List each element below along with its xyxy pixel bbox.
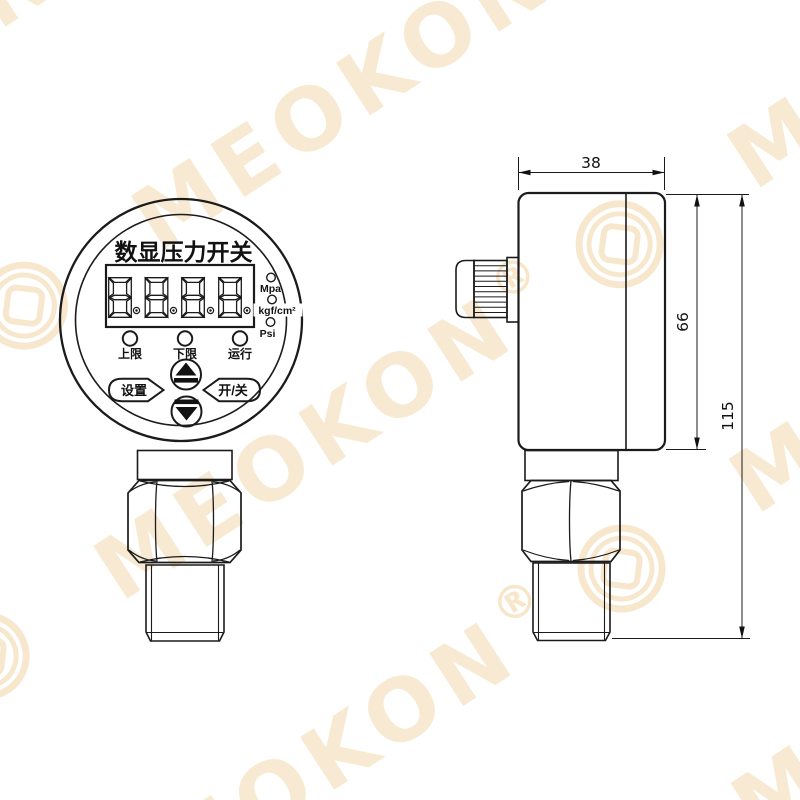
mpa-unit-label: Mpa bbox=[260, 283, 281, 295]
hex-nut bbox=[128, 481, 241, 563]
mpa-indicator-lamp bbox=[267, 273, 276, 282]
seven-segment-digit bbox=[145, 278, 168, 318]
kgfcm2-unit-label: kgf/cm² bbox=[258, 305, 296, 317]
arrow-left-icon bbox=[519, 170, 531, 176]
arrow-down-icon bbox=[739, 627, 745, 639]
collar-side bbox=[525, 451, 618, 481]
arrow-up-icon bbox=[739, 195, 745, 207]
front-view: 数显压力开关 Mpa kgf/cm² Psi bbox=[60, 199, 303, 641]
arrow-down-icon bbox=[694, 438, 700, 450]
kgfcm2-indicator-lamp bbox=[268, 295, 277, 304]
decimal-point bbox=[133, 307, 139, 313]
dimension-total-height-115: 115 bbox=[612, 195, 750, 639]
pressure-switch-drawing: 数显压力开关 Mpa kgf/cm² Psi bbox=[0, 0, 800, 800]
front-fittings bbox=[128, 451, 241, 642]
seven-segment-digit bbox=[219, 278, 242, 318]
upper-limit-label: 上限 bbox=[118, 346, 142, 361]
dimension-total-height-value: 115 bbox=[719, 401, 737, 431]
cable-gland-cap bbox=[456, 261, 474, 318]
thread-stud-side bbox=[533, 563, 610, 641]
decimal-point bbox=[244, 307, 250, 313]
side-view: 38 66 115 bbox=[456, 154, 750, 641]
decimal-point bbox=[170, 307, 176, 313]
down-bar-icon bbox=[175, 400, 199, 405]
gauge-outer-ring bbox=[60, 199, 302, 441]
up-arrow-icon bbox=[176, 363, 197, 376]
cable-gland-ribs bbox=[474, 261, 507, 318]
cable-gland bbox=[456, 258, 519, 323]
cable-gland-flange bbox=[507, 258, 519, 323]
housing-body bbox=[519, 193, 666, 450]
seven-segment-digits bbox=[109, 278, 250, 318]
psi-indicator-lamp bbox=[266, 318, 275, 327]
seven-segment-digit bbox=[182, 278, 205, 318]
running-lamp bbox=[233, 331, 247, 345]
side-fittings bbox=[522, 451, 620, 641]
dimension-body-height-value: 66 bbox=[674, 312, 692, 332]
psi-unit-label: Psi bbox=[260, 328, 276, 340]
status-lamps: 上限 下限 运行 bbox=[118, 331, 252, 361]
dimension-width-value: 38 bbox=[581, 154, 601, 172]
technical-drawing-canvas: MEOKON ® MEOKON ® MEOKON ® MEOKON ® MEOK… bbox=[0, 0, 800, 800]
panel-buttons: 设置 开/关 bbox=[109, 360, 260, 427]
running-label: 运行 bbox=[228, 346, 252, 361]
upper-limit-lamp bbox=[123, 331, 137, 345]
seven-segment-digit bbox=[109, 278, 132, 318]
collar bbox=[138, 451, 233, 480]
arrow-up-icon bbox=[694, 195, 700, 207]
power-button-label: 开/关 bbox=[218, 383, 248, 398]
cable-gland-rib-lines bbox=[474, 266, 507, 313]
thread-stud bbox=[146, 565, 224, 641]
dimension-width-38: 38 bbox=[519, 154, 665, 190]
lower-limit-lamp bbox=[178, 331, 192, 345]
arrow-right-icon bbox=[653, 170, 665, 176]
hex-nut-side bbox=[522, 481, 620, 562]
device-title: 数显压力开关 bbox=[115, 239, 253, 265]
decimal-point bbox=[207, 307, 213, 313]
up-bar-icon bbox=[174, 378, 198, 383]
down-arrow-icon bbox=[176, 407, 198, 421]
set-button-label: 设置 bbox=[121, 383, 147, 398]
